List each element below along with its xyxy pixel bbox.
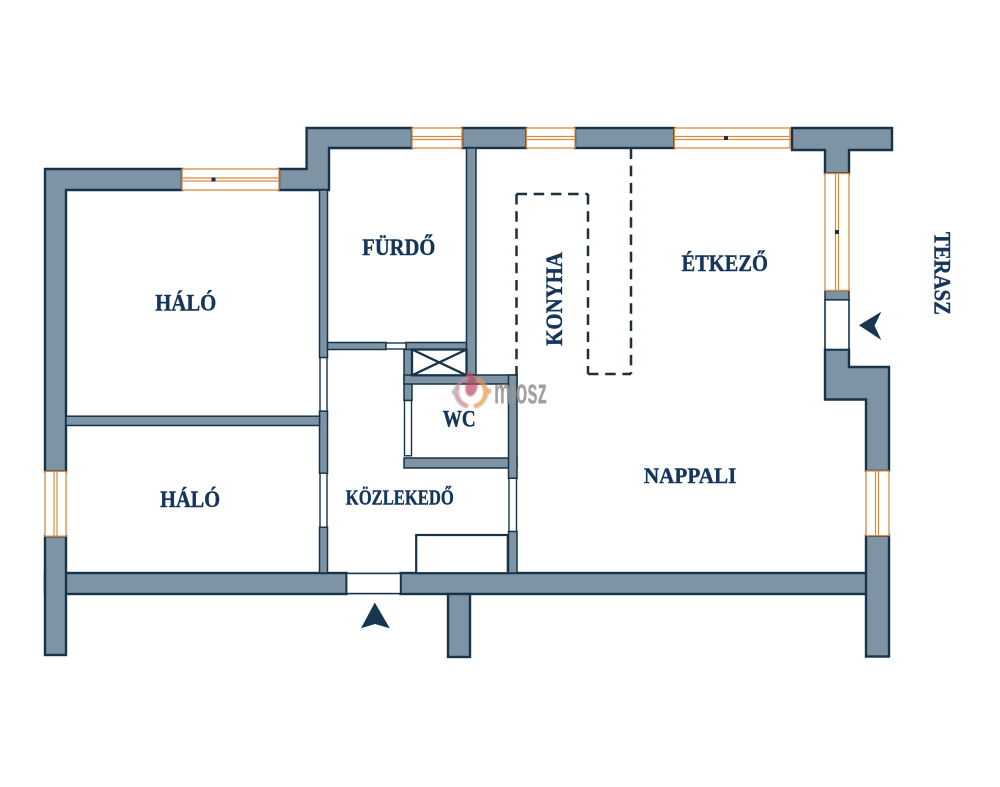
svg-text:TERASZ: TERASZ: [928, 232, 954, 315]
svg-text:miosz: miosz: [494, 372, 547, 412]
svg-text:ÉTKEZŐ: ÉTKEZŐ: [681, 250, 768, 276]
svg-text:KÖZLEKEDŐ: KÖZLEKEDŐ: [346, 486, 454, 510]
svg-text:HÁLÓ: HÁLÓ: [160, 486, 220, 512]
svg-text:KONYHA: KONYHA: [542, 252, 567, 346]
svg-text:FÜRDŐ: FÜRDŐ: [362, 234, 435, 260]
svg-text:HÁLÓ: HÁLÓ: [155, 290, 216, 316]
svg-text:NAPPALI: NAPPALI: [644, 463, 737, 488]
svg-text:WC: WC: [443, 407, 476, 432]
